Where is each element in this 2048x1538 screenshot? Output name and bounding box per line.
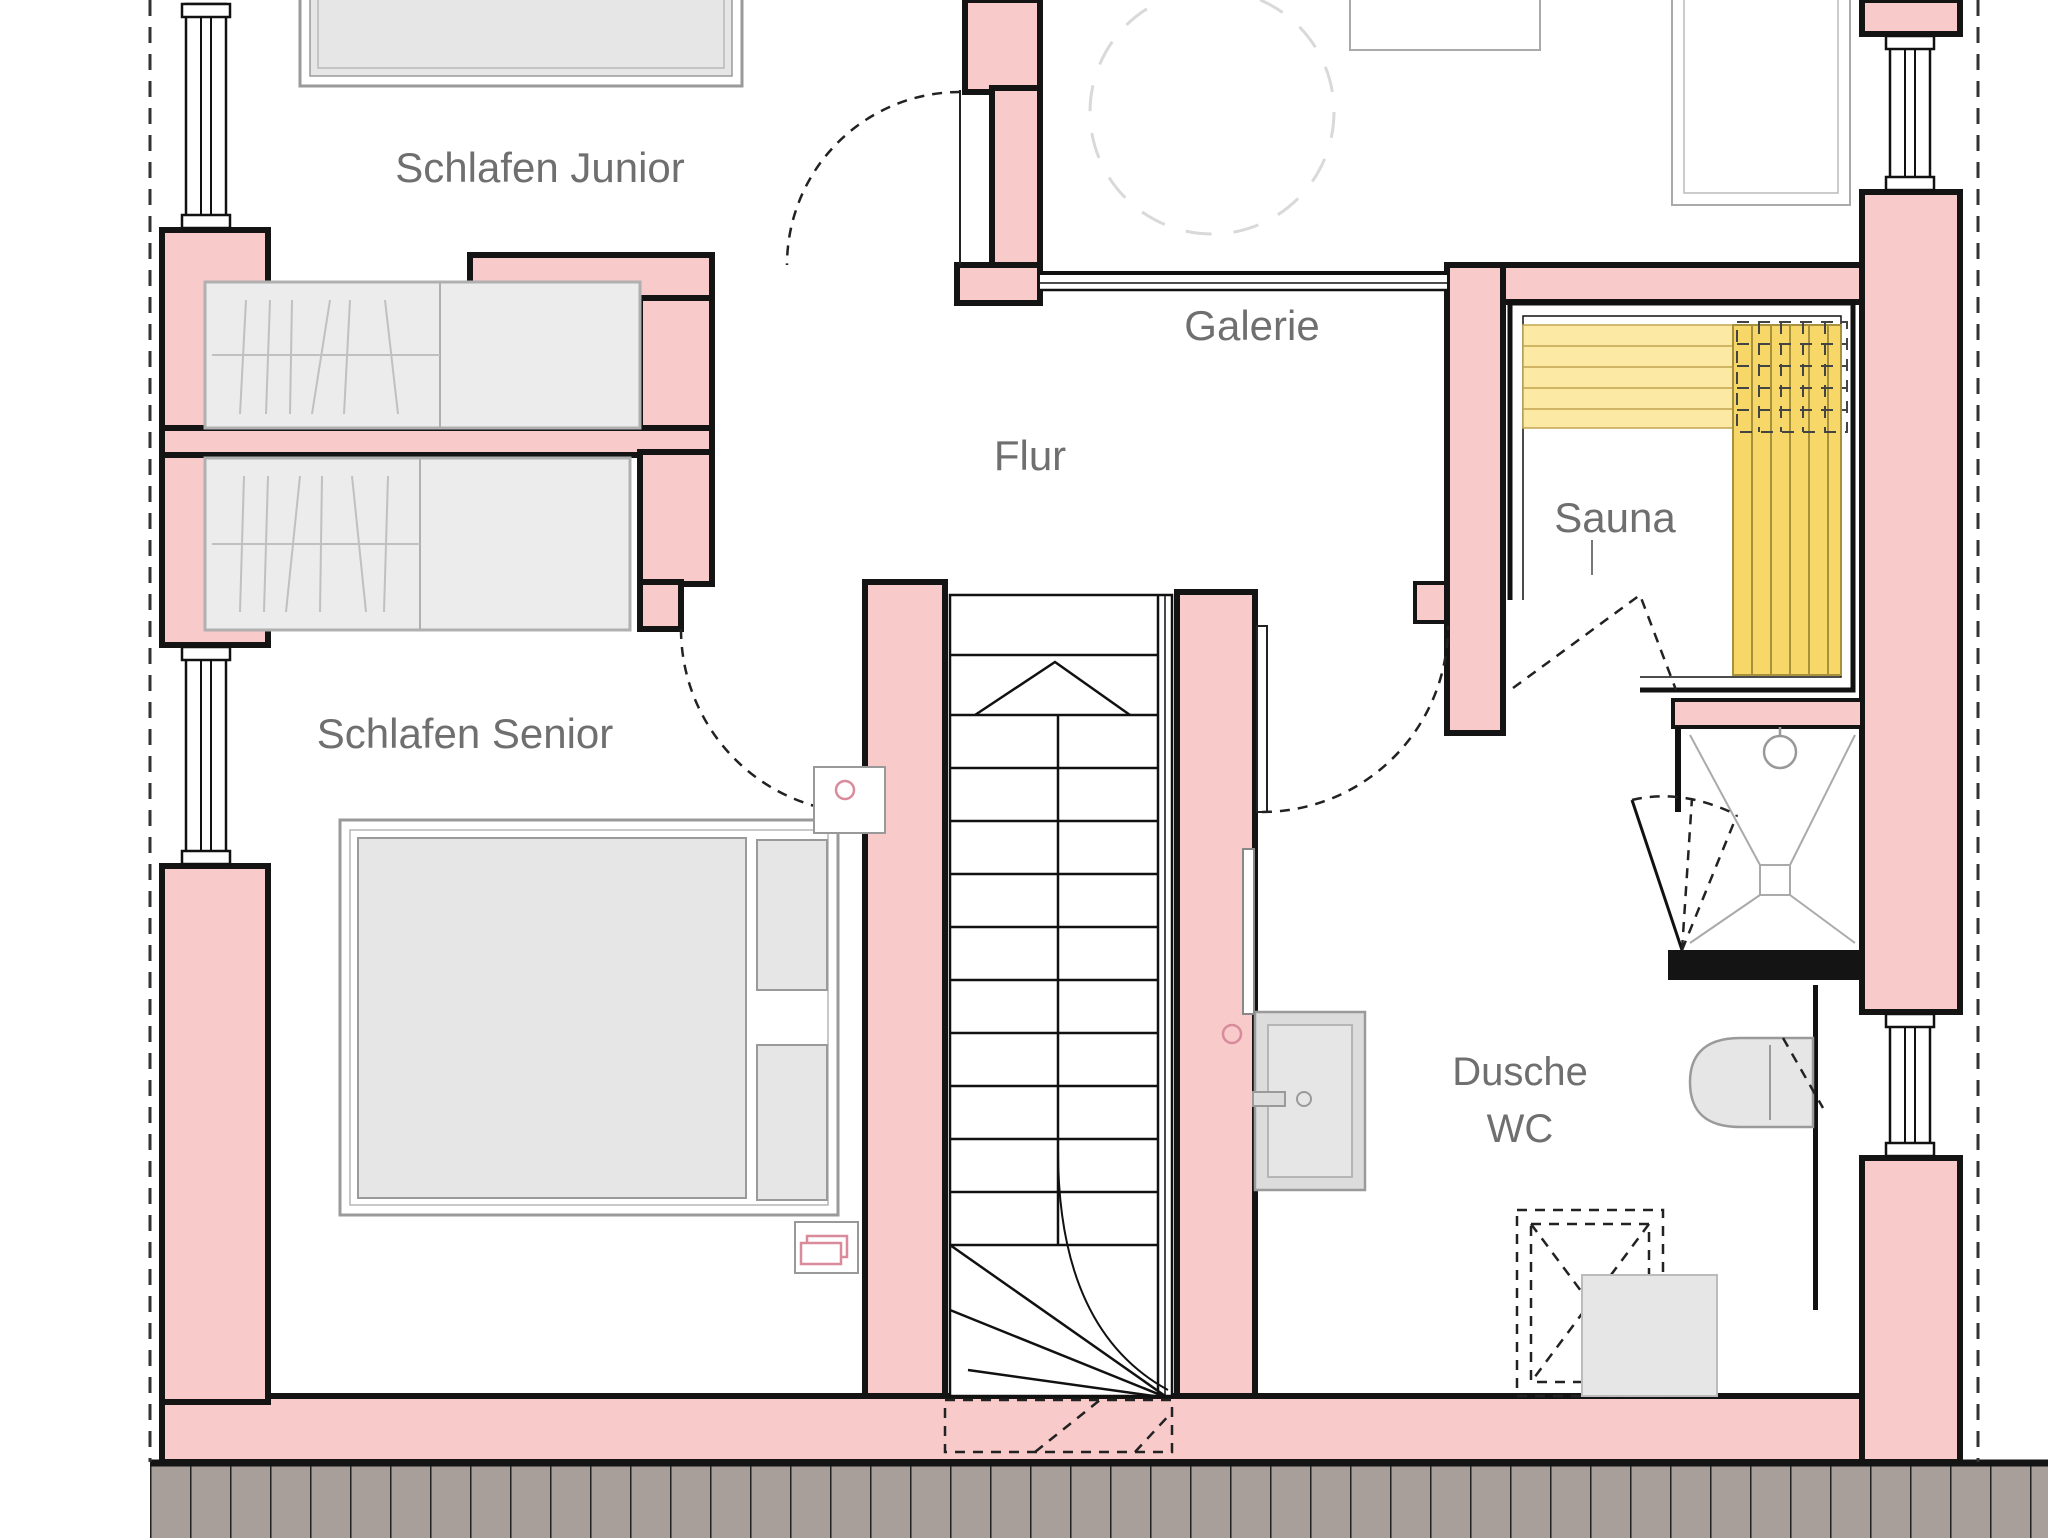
room-label-sauna: Sauna <box>1554 494 1676 541</box>
shower-head-icon <box>1764 736 1796 768</box>
window-right-bottom <box>1886 1014 1934 1156</box>
window-left-top <box>182 4 230 228</box>
staircase <box>950 595 1172 1398</box>
room-label-schlafen-senior: Schlafen Senior <box>317 710 614 757</box>
sauna-bench-right <box>1733 325 1841 675</box>
floor-plan-drawing: Schlafen Junior Galerie Flur Sauna Schla… <box>0 0 2048 1538</box>
door-bath <box>1257 626 1448 812</box>
window-left-bottom <box>182 647 230 864</box>
radiator <box>1243 849 1254 1014</box>
washbasin <box>1253 1012 1365 1190</box>
gallery-void-circle <box>1090 0 1334 234</box>
pillow <box>757 840 827 990</box>
toilet <box>1690 985 1823 1310</box>
shower-folding-door <box>1632 796 1737 950</box>
window-right-top <box>1886 36 1934 190</box>
pillow <box>757 1045 827 1200</box>
faucet-icon <box>1253 1092 1285 1106</box>
room-label-dusche: Dusche <box>1452 1050 1588 1094</box>
room-label-schlafen-junior: Schlafen Junior <box>395 144 685 191</box>
shower <box>1632 727 1855 950</box>
terrace-decking <box>150 1462 2048 1538</box>
sauna-bench-top <box>1523 325 1733 428</box>
senior-bed <box>340 820 838 1215</box>
gallery-furniture <box>1350 0 1850 205</box>
room-label-wc: WC <box>1487 1107 1554 1151</box>
gallery-railing <box>1040 271 1447 291</box>
floor-plan: Schlafen Junior Galerie Flur Sauna Schla… <box>0 0 2048 1538</box>
wall-panel-bottom <box>795 1222 858 1273</box>
junior-bed <box>300 0 742 86</box>
bath-cabinet <box>1582 1275 1717 1396</box>
door-junior <box>787 90 960 265</box>
wardrobe-senior <box>205 458 630 630</box>
room-label-galerie: Galerie <box>1184 302 1319 349</box>
wardrobe-junior <box>205 282 640 428</box>
wall-panel-top <box>814 767 885 833</box>
room-label-flur: Flur <box>994 432 1066 479</box>
